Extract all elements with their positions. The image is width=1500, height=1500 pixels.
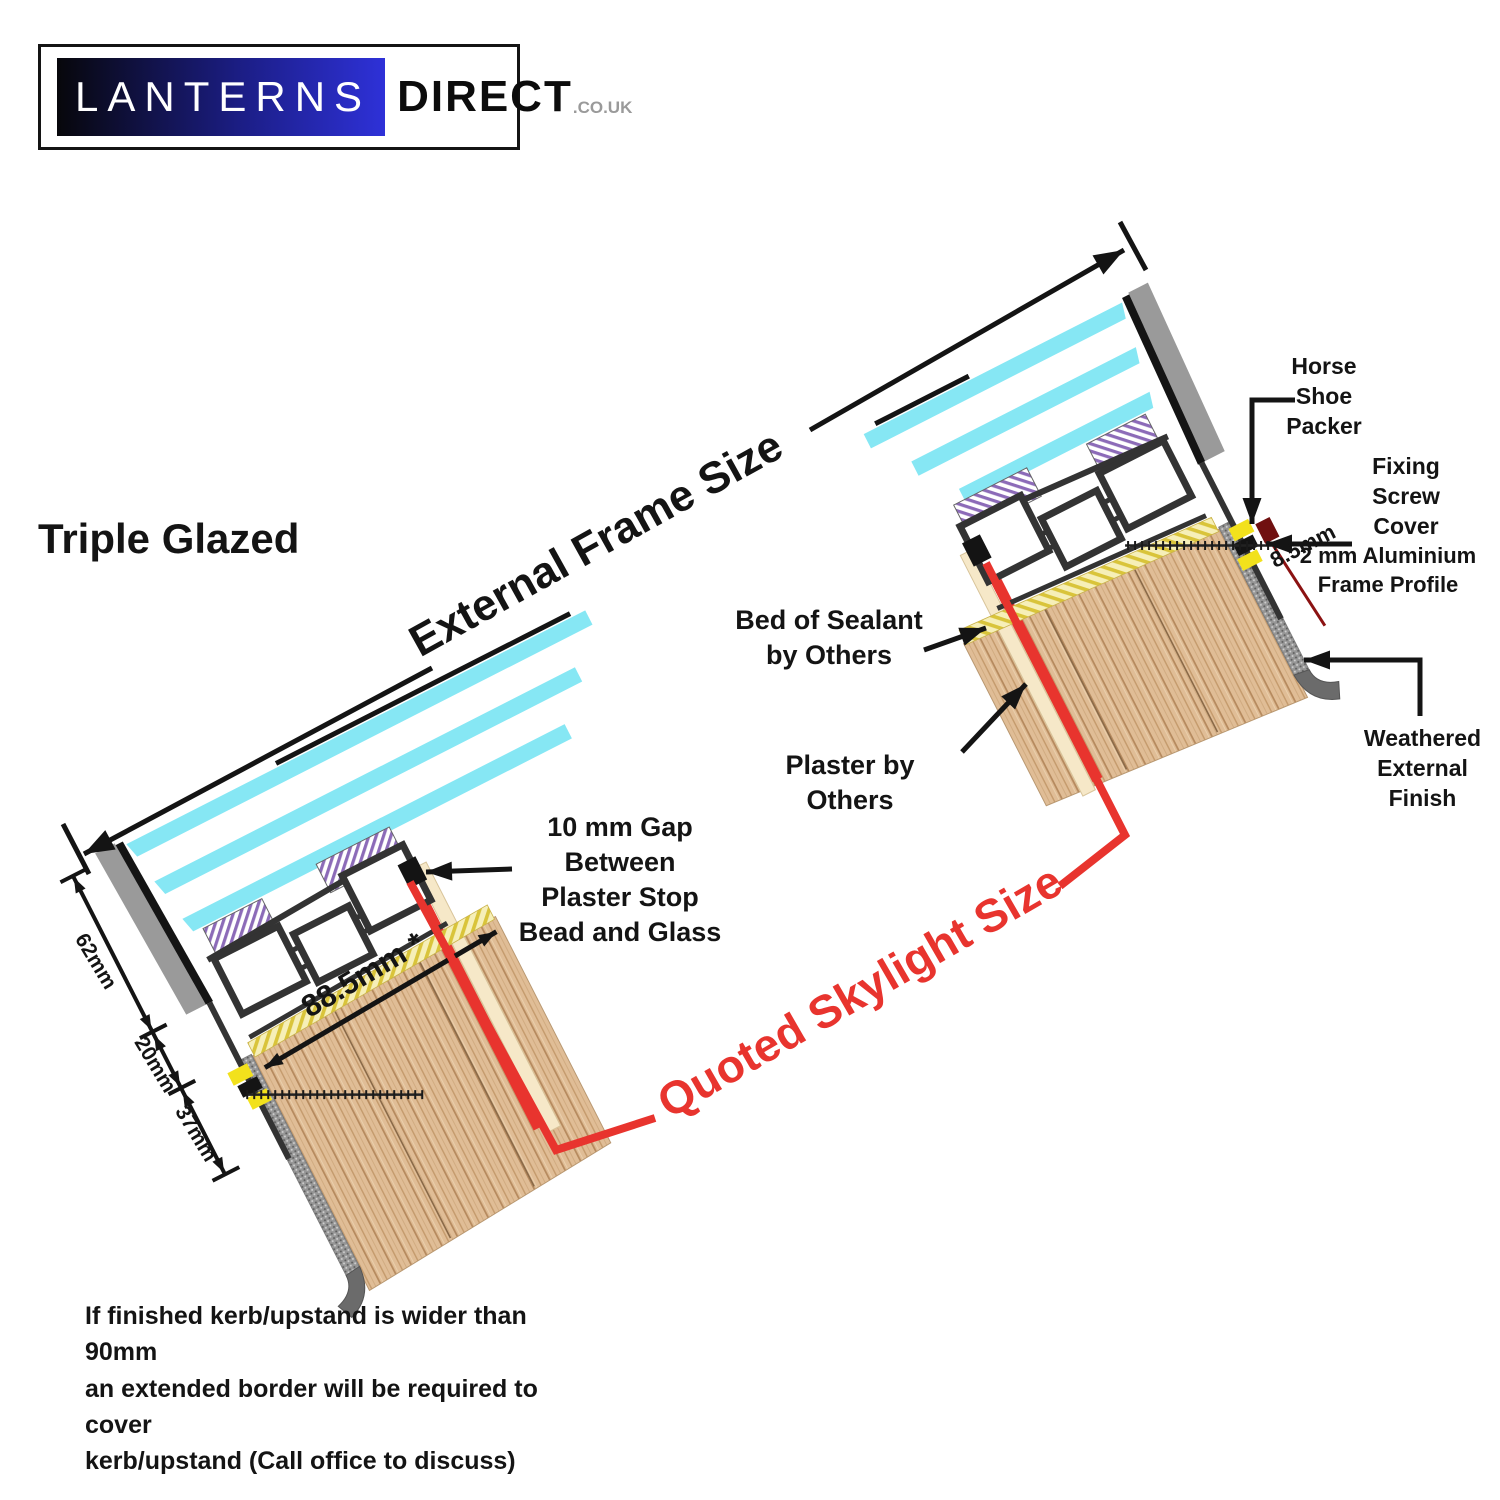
plaster-by-others-label: Plaster by Others <box>740 748 960 818</box>
fixing-screw-cover-label: Fixing Screw Cover <box>1340 452 1472 542</box>
dimension-text: 20mm <box>130 1033 181 1097</box>
dimension-text: 62mm <box>70 929 121 993</box>
glazing-type-label: Triple Glazed <box>38 512 299 567</box>
lanterns-direct-logo: LANTERNS DIRECT .CO.UK <box>38 44 520 150</box>
left-jamb-section: 62mm20mm37mm88.5mm * <box>40 605 823 1354</box>
logo-lanterns-text: LANTERNS <box>57 58 385 136</box>
bed-of-sealant-label: Bed of Sealant by Others <box>733 603 925 673</box>
plaster-gap-label: 10 mm Gap Between Plaster Stop Bead and … <box>516 810 724 950</box>
plaster-gap-arrow <box>426 862 512 881</box>
dimension-text: 37mm <box>170 1102 221 1166</box>
aluminium-profile-label: 2 mm Aluminium Frame Profile <box>1298 542 1478 599</box>
logo-tld-text: .CO.UK <box>573 98 633 118</box>
kerb-width-footnote: If finished kerb/upstand is wider than 9… <box>85 1298 565 1479</box>
skylight-section-diagram: 62mm20mm37mm88.5mm * LANTERNS DIRECT .CO… <box>0 0 1500 1500</box>
horse-shoe-packer-label: Horse Shoe Packer <box>1258 352 1390 442</box>
weathered-finish-label: Weathered External Finish <box>1350 724 1495 814</box>
logo-direct-text: DIRECT <box>397 72 573 122</box>
